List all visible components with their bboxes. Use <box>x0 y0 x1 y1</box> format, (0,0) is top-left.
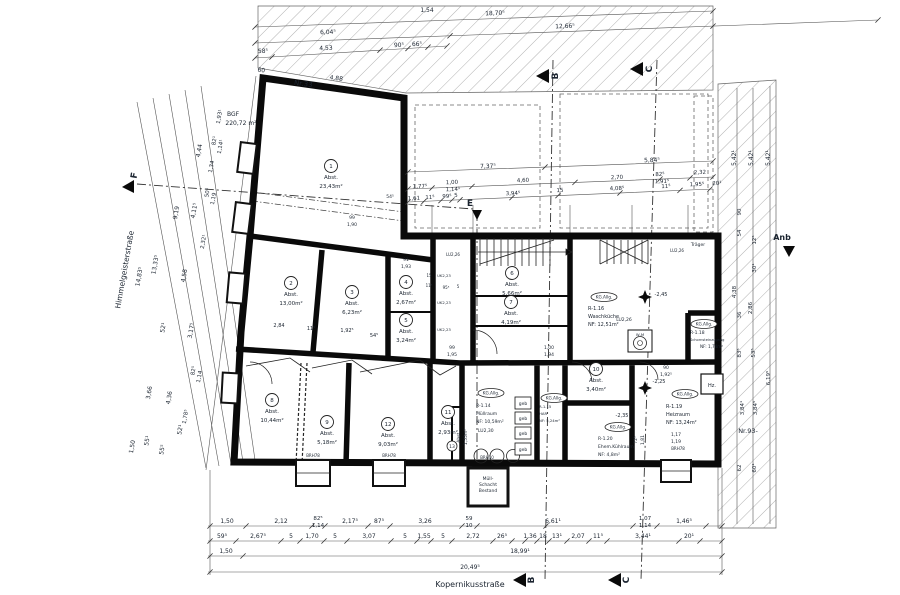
room-label: Abst. <box>324 175 338 181</box>
lvl225-label: -2,25 <box>653 379 666 385</box>
dim-label: 58⁵ <box>258 48 269 55</box>
dim-label: 1,95 <box>447 352 457 358</box>
dim-label: 1,92⁵ <box>660 372 672 378</box>
section-marker-label: B <box>527 576 537 583</box>
muell1-label: Müll- <box>483 476 494 482</box>
dim-label: 5 <box>457 284 460 289</box>
annex-outline <box>694 96 713 232</box>
room-label: Abst. <box>284 292 298 298</box>
dim-label: 4,36 <box>165 390 174 405</box>
dim-label: 7,37⁵ <box>480 163 497 171</box>
dim-label: 1,50 <box>219 548 233 555</box>
dim-label: 1,95⁵ <box>690 181 705 189</box>
dim-label: 4,11⁵ <box>190 202 200 219</box>
utility-room-label: R-1.20 <box>598 436 613 442</box>
uk223-label: UK2,23 <box>437 327 451 332</box>
room-area: 3,40m² <box>586 386 606 393</box>
dim-label: 1,78⁵ <box>181 409 190 424</box>
dim-label: 1,14 <box>639 523 652 529</box>
dim-label: 91 <box>403 257 409 263</box>
dim-label: 9,19 <box>172 205 181 220</box>
room-area: 6,23m² <box>342 309 362 316</box>
room-label: Abst. <box>320 431 334 437</box>
dim-label: 18 <box>539 533 547 540</box>
dim-label: 82⁵ <box>313 515 322 522</box>
room-area: 23,43m² <box>319 183 342 190</box>
utility-room-label: NF: 1,74m² <box>700 344 723 349</box>
dim-label: 66⁵ <box>412 41 423 48</box>
room-number: 2 <box>289 281 293 287</box>
wm-label: W-M <box>636 332 644 337</box>
dim-label: 1,54 <box>420 7 434 14</box>
bgf2-label: 220,72 m² <box>225 120 257 127</box>
dim-label: 1,19 <box>671 439 681 445</box>
lu226-label: LU2,26 <box>446 252 460 257</box>
dim-label: 1,70 <box>305 533 319 540</box>
section-b-arrow-icon <box>513 573 526 587</box>
room-label: Abst. <box>265 409 279 415</box>
dim-label: 2,72 <box>466 533 480 540</box>
dim-label: 82⁵ <box>655 171 664 178</box>
utility-room-label: R-1.16 <box>588 306 604 312</box>
dim-label: 4,44 <box>195 143 204 158</box>
room-area: 1,55m² <box>463 429 469 445</box>
dim-label: 99 <box>349 215 355 221</box>
dim-label: 52¹ <box>159 322 168 334</box>
dim-label: 59 <box>466 516 473 522</box>
room-number: 1 <box>329 164 333 170</box>
dim-label: 62 <box>737 465 743 472</box>
section-marker-label: E <box>467 199 473 209</box>
room-number: 4 <box>404 280 408 286</box>
dim-label: 5,42¹ <box>748 150 755 166</box>
dim-label: 18,99¹ <box>510 548 530 555</box>
dim-label: 2,12 <box>274 518 288 525</box>
dim-label: 54⁵ <box>370 333 378 339</box>
room-label: Abst. <box>345 301 359 307</box>
street-name: Himmelgeisterstraße <box>113 230 136 310</box>
dim-label: 11⁵ <box>425 194 434 201</box>
dim-label: 4,38 <box>732 285 738 298</box>
section-marker-label: C <box>622 576 632 583</box>
dim-label: 4,53 <box>319 45 333 52</box>
room-number: 3 <box>350 290 354 296</box>
dim-label: 90⁵ <box>394 42 405 49</box>
dim-label: 60 <box>257 67 266 75</box>
utility-room-label: R-1.14 <box>476 403 491 409</box>
dim-label: 83⁵ <box>736 348 743 357</box>
dim-label: 30¹ <box>751 263 758 272</box>
annex-arrow-icon <box>783 246 795 257</box>
dim-label: 55⁵ <box>158 444 167 456</box>
room-number: 13 <box>449 444 455 450</box>
room-number: 12 <box>385 422 392 428</box>
dim-label: 55¹ <box>143 435 152 447</box>
dim-label: 95⁵ <box>443 285 450 290</box>
dim-label: 2,32 <box>694 170 706 176</box>
utility-room-label: Waschküche <box>588 314 619 320</box>
dim-label: 2,70 <box>611 175 624 181</box>
kg-allg-tag: KG.Allg. <box>696 322 713 327</box>
dim-label: 12,66⁵ <box>555 23 575 31</box>
dim-label: 2,67⁵ <box>250 533 266 540</box>
brh78-label: BRH78 <box>671 446 685 451</box>
dim-label: 1,50 <box>128 439 137 454</box>
utility-room-label: R-1.15 <box>539 404 552 409</box>
dim-label: 4,58 <box>180 268 189 283</box>
dim-label: 5,84⁵ <box>644 157 661 165</box>
room-number: 11 <box>445 410 452 416</box>
dim-label: 2,07 <box>571 533 585 540</box>
kg-allg-tag: KG.Allg. <box>610 425 627 430</box>
dim-label: 5 <box>454 193 458 199</box>
dim-label: 54 <box>737 229 743 236</box>
dim-label: 1,46⁵ <box>676 518 692 525</box>
dim-label: 2,17⁵ <box>342 518 358 525</box>
bgf1-label: BGF <box>227 111 240 118</box>
dim-label: 11⁵ <box>593 533 604 540</box>
dim-label: 1,14 <box>196 370 204 384</box>
utility-room-label: NF: 12,51m² <box>588 322 619 328</box>
room-label: Abst. <box>399 291 413 297</box>
lu226-label: LU2,26 <box>670 248 684 253</box>
dim-label: 5 <box>403 533 407 540</box>
dim-label: 13,33⁵ <box>150 254 160 275</box>
dim-label: 1,77⁵ <box>413 183 428 191</box>
room-label: Abst. <box>381 433 395 439</box>
floor-plan-canvas: 18,70⁵6,04⁵12,66⁵58⁵4,5390⁵66⁵604,881,54… <box>0 0 900 595</box>
dim-label: 10 <box>466 523 473 529</box>
dim-label: 5,42¹ <box>731 150 738 166</box>
room-label: Abst. <box>504 311 518 317</box>
section-f-arrow-icon <box>122 180 134 193</box>
dim-label: 1,81 <box>640 435 646 445</box>
dim-label: 6,19⁵ <box>765 371 772 385</box>
brh78-label: BRH78 <box>382 453 396 458</box>
kg-allg-tag: KG.Allg. <box>596 295 613 300</box>
room-area: 9,03m² <box>378 441 398 448</box>
dim-label: 3,44¹ <box>635 533 651 540</box>
section-marker-label: B <box>551 72 561 79</box>
dim-label: 1,90 <box>347 222 357 228</box>
dim-label: 5,42¹ <box>765 150 772 166</box>
dim-label: 90 <box>663 365 669 371</box>
traeger-label: Träger <box>690 242 705 248</box>
kg-allg-tag: KG.Allg. <box>483 391 500 396</box>
section-e-arrow-icon <box>472 210 482 220</box>
dim-label: 99 <box>449 345 455 351</box>
dim-label: 1,00 <box>544 345 554 351</box>
brh10-label: BRH10 <box>480 455 494 460</box>
street-name: Kopernikusstraße <box>435 580 504 589</box>
dim-label: 1,36 <box>523 533 537 540</box>
nr33-label: Nr.33 <box>294 79 314 90</box>
utility-room-label: R-1.18 <box>690 330 705 336</box>
room-label: Abst. <box>589 378 603 384</box>
dim-label: 1,00 <box>446 180 459 186</box>
room-area: 2,93m² <box>438 429 458 436</box>
upper-floor-outline <box>415 105 540 228</box>
utility-room-label: Heizraum <box>666 412 690 418</box>
room-number: 9 <box>325 420 329 426</box>
floor-plan-page: 18,70⁵6,04⁵12,66⁵58⁵4,5390⁵66⁵604,881,54… <box>0 0 900 595</box>
room-area: 4,19m² <box>501 319 521 326</box>
room-label: Abst. <box>505 282 519 288</box>
dim-label: 2,84 <box>273 323 284 329</box>
dim-label: 99⁵ <box>442 193 451 200</box>
room-area: 10,44m² <box>260 417 283 424</box>
dim-label: 1,07 <box>639 516 652 522</box>
dim-label: 26⁵ <box>497 533 508 540</box>
staircase-secondary <box>600 240 648 264</box>
dim-label: 14,83⁵ <box>134 266 144 287</box>
room-number: 6 <box>510 271 514 277</box>
uk223-label: UK2,23 <box>437 273 451 278</box>
dim-label: 15 <box>426 273 432 278</box>
dim-label: 36 <box>737 311 743 318</box>
dim-label: 59⁵ <box>217 533 228 540</box>
room-label: Abst. <box>399 329 413 335</box>
dim-label: 1,61 <box>408 196 420 202</box>
room-label: Abst. <box>456 431 462 442</box>
muell2-label: Schacht <box>479 482 497 488</box>
dim-label: 1,93 <box>401 264 411 270</box>
level-mark-icon <box>638 381 652 395</box>
dim-label: 20,49⁵ <box>460 564 480 571</box>
dim-label: 18,70⁵ <box>485 10 505 18</box>
dim-label: 1,17 <box>671 432 681 438</box>
anb-label: Anb <box>773 233 791 242</box>
room-area: 5,18m² <box>317 439 337 446</box>
geb-label: geb <box>519 447 528 453</box>
dim-label: 5 <box>333 533 337 540</box>
section-c-arrow-icon <box>608 573 621 587</box>
dim-label: 5 <box>441 533 445 540</box>
geb-label: geb <box>519 401 528 407</box>
dim-label: 87⁵ <box>374 518 385 525</box>
utility-room-label: NF: 5,24m² <box>539 418 560 423</box>
utility-room-label: Schornsteinzugang <box>690 338 724 342</box>
dim-label: 12⁵ <box>751 235 758 244</box>
dim-label: 1,94 <box>544 352 554 358</box>
dim-label: 3,66 <box>145 385 154 400</box>
lu230-label: LU2,30 <box>478 428 494 434</box>
dim-label: 3,26 <box>418 518 432 525</box>
brh78-label: BRH78 <box>306 453 320 458</box>
dim-label: 1,19 <box>210 192 218 206</box>
utility-room-label: NF: 10,59m² <box>476 419 504 425</box>
kg-allg-tag: KG.Allg. <box>677 392 694 397</box>
uk223-label: UK2,23 <box>437 300 451 305</box>
geb-label: geb <box>519 431 528 437</box>
dim-label: 1,93¹ <box>215 109 224 124</box>
dim-label: 20¹ <box>684 533 695 540</box>
neighbour-building-right <box>718 80 776 528</box>
utility-room-label: Ehem.Kühlraum <box>598 444 634 450</box>
dim-label: 3,84⁵ <box>752 401 759 415</box>
dim-label: 53⁵ <box>750 348 757 357</box>
room-label: Abst. <box>441 421 455 427</box>
upper-floor-outline <box>560 94 708 228</box>
room-number: 10 <box>593 367 600 373</box>
utility-room-label: HAR <box>539 411 547 416</box>
nr93-label: Nr.93- <box>738 427 758 435</box>
room-number: 7 <box>509 300 513 306</box>
dim-label: 11⁵ <box>426 283 433 288</box>
dim-label: 54⁵ <box>386 194 394 200</box>
utility-room-label: Müllraum <box>476 411 497 417</box>
room-area: 3,24m² <box>396 337 416 344</box>
dim-label: 13¹ <box>552 533 563 540</box>
lvl245-label: -2,45 <box>655 292 668 298</box>
dim-label: 1,92⁵ <box>340 328 353 334</box>
room-number: 5 <box>404 318 408 324</box>
staircase-main <box>478 238 572 266</box>
kg-allg-tag: KG.Allg. <box>546 396 563 401</box>
room-number: 8 <box>270 398 274 404</box>
lvl235-label: -2,35 <box>616 413 629 419</box>
utility-room-label: NF: 4,8m² <box>598 452 620 458</box>
dim-label: 72⁵ <box>633 436 639 444</box>
dim-label: 4,88 <box>329 74 343 83</box>
dim-label: 11⁵ <box>307 326 315 332</box>
dim-label: 90 <box>737 208 743 215</box>
dim-label: 1,50 <box>220 518 234 525</box>
dim-label: 52¹ <box>176 424 185 436</box>
muell3-label: Bestand <box>479 488 498 494</box>
dim-label: 2,32¹ <box>199 234 208 249</box>
room-area: 2,67m² <box>396 299 416 306</box>
section-marker-label: F <box>130 172 141 180</box>
section-marker-label: C <box>645 65 655 72</box>
dim-label: 1,34 <box>208 160 216 174</box>
dim-label: 11⁵ <box>661 183 670 190</box>
hz-label: Hz. <box>708 383 716 389</box>
geb-label: geb <box>519 416 528 422</box>
utility-room-label: R-1.19 <box>666 404 682 410</box>
dim-label: 2,86 <box>748 301 754 314</box>
dim-label: 3,17⁵ <box>187 322 197 339</box>
dim-label: 3,07 <box>362 533 376 540</box>
dim-label: 6,04⁵ <box>320 29 337 37</box>
dim-label: 5 <box>289 533 293 540</box>
utility-room-label: NF: 13,24m² <box>666 420 697 426</box>
dim-label: 60¹ <box>751 463 758 472</box>
dim-label: 4,60 <box>517 178 530 184</box>
dim-label: 3,84¹ <box>739 401 746 415</box>
dim-label: 1,14¹ <box>446 186 461 194</box>
room-area: 13,00m² <box>279 300 302 307</box>
dim-label: 20¹ <box>712 180 721 187</box>
